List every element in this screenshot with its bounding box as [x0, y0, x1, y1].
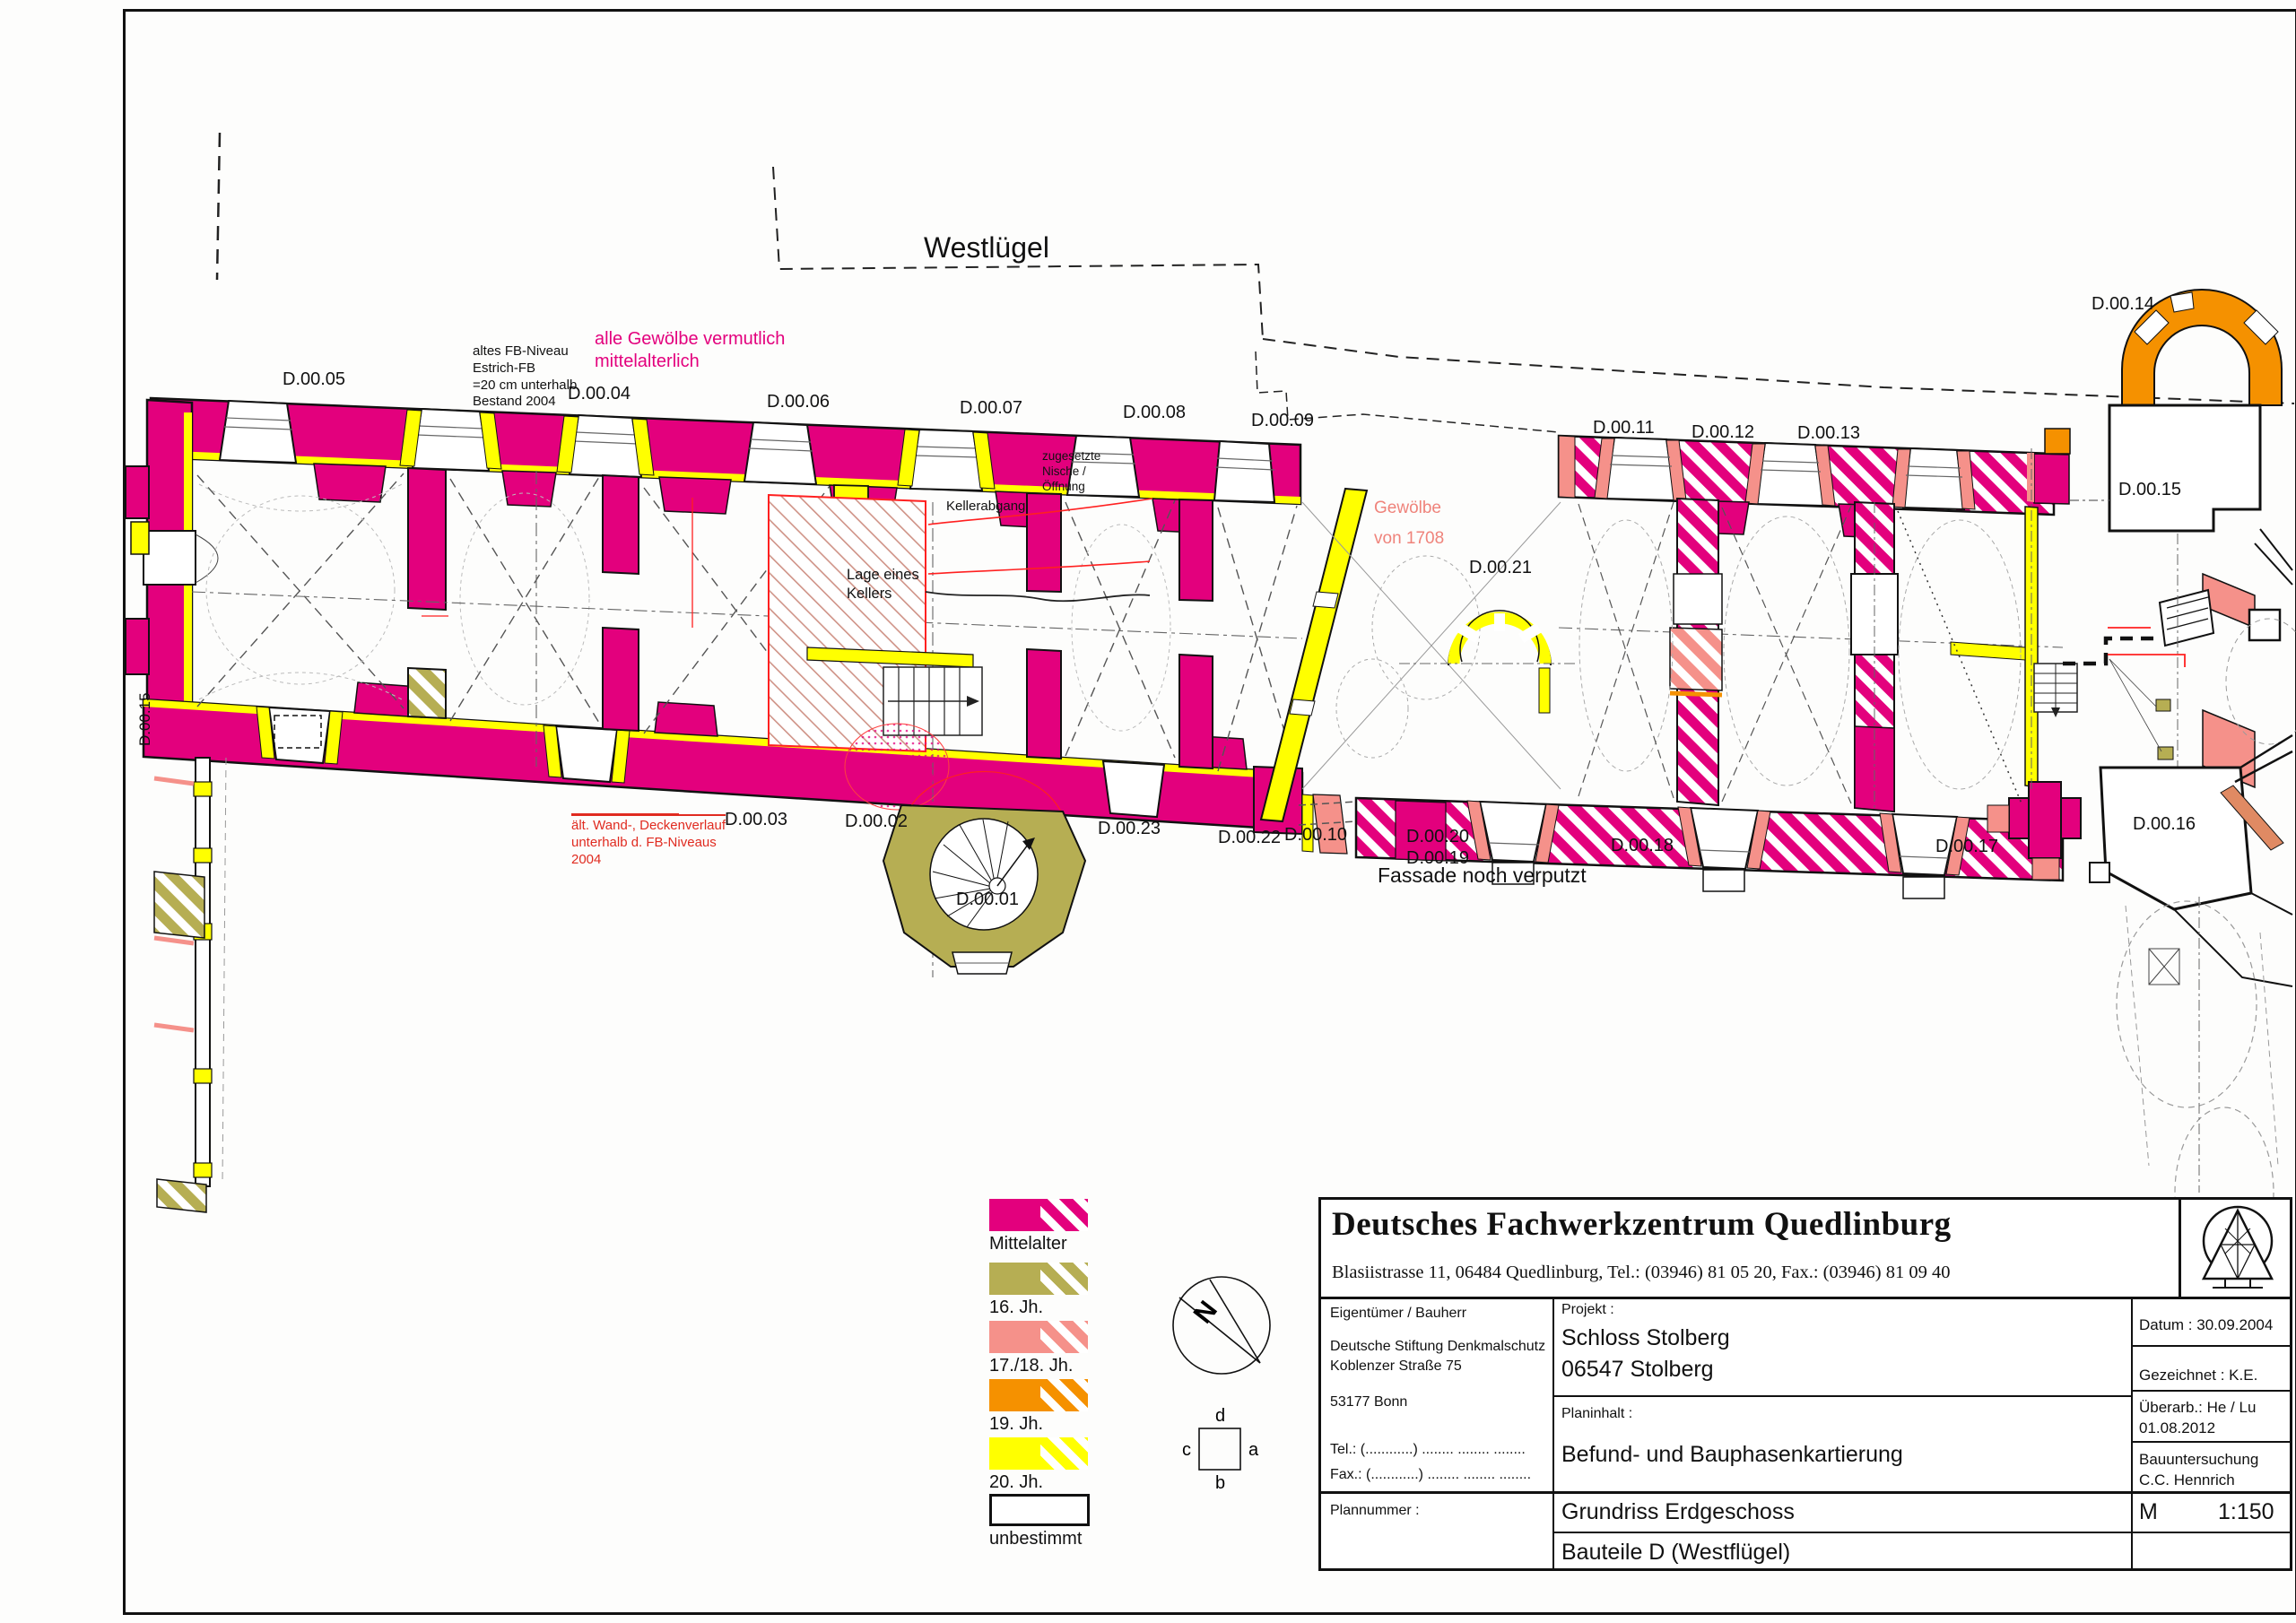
legend-swatch-hatch: [1040, 1379, 1088, 1411]
legend-item-mittelalter: Mittelalter: [989, 1199, 1092, 1254]
company-name: Deutsches Fachwerkzentrum Quedlinburg: [1332, 1205, 1952, 1244]
north-letter: N: [1188, 1296, 1223, 1329]
legend-item-16jh: 16. Jh.: [989, 1263, 1092, 1318]
legend-swatch-solid: [989, 1321, 1040, 1353]
room-label: D.00.21: [1469, 558, 1532, 578]
survey-line2: C.C. Hennrich: [2139, 1471, 2235, 1489]
legend-item-unbestimmt: unbestimmt: [989, 1494, 1092, 1549]
plan-heading: Westlügel: [924, 230, 1049, 265]
legend-item-20jh: 20. Jh.: [989, 1437, 1092, 1493]
legend-label: 16. Jh.: [989, 1298, 1092, 1318]
owner-label: Eigentümer / Bauherr: [1330, 1306, 1466, 1322]
sheet-subtitle: Bauteile D (Westflügel): [1561, 1540, 1790, 1566]
survey-line1: Bauuntersuchung: [2139, 1451, 2258, 1469]
note-fassade: Fassade noch verputzt: [1378, 863, 1587, 889]
room-label: D.00.10: [1284, 825, 1347, 846]
room-label: D.00.18: [1611, 836, 1674, 856]
note-nische: zugesetzte Nische / Öffnung: [1042, 449, 1100, 495]
orientation-c: c: [1182, 1440, 1191, 1460]
legend-swatch-hatch: [1040, 1199, 1088, 1231]
company-address: Blasiistrasse 11, 06484 Quedlinburg, Tel…: [1332, 1263, 1950, 1283]
room-label: D.00.17: [1935, 837, 1998, 857]
legend-label: 19. Jh.: [989, 1414, 1092, 1435]
date-value: Datum : 30.09.2004: [2139, 1316, 2273, 1334]
legend-swatch-solid: [989, 1379, 1040, 1411]
owner-tel: Tel.: (............) ........ ........ .…: [1330, 1440, 1526, 1460]
company-logo: [2189, 1202, 2286, 1295]
room-label-vertical: D.00.15: [136, 692, 154, 746]
plannumber-label: Plannummer :: [1330, 1503, 1420, 1519]
legend-swatch-plain: [989, 1494, 1090, 1526]
southwest-corridor: [154, 758, 226, 1212]
room-label: D.00.09: [1251, 411, 1314, 431]
title-block: Deutsches Fachwerkzentrum Quedlinburg Bl…: [1318, 1197, 2292, 1571]
note-gewoelbe-1708: Gewölbe von 1708: [1374, 493, 1444, 554]
revised-line1: Überarb.: He / Lu: [2139, 1399, 2256, 1417]
project-city: 06547 Stolberg: [1561, 1357, 1714, 1383]
owner-line2: Koblenzer Straße 75: [1330, 1357, 1462, 1376]
room-label: D.00.14: [2092, 294, 2154, 315]
room-label: D.00.05: [283, 369, 345, 390]
right-end-structures: [2063, 290, 2296, 1278]
room-label: D.00.03: [725, 810, 787, 830]
revised-line2: 01.08.2012: [2139, 1419, 2215, 1437]
orientation-a: a: [1248, 1440, 1259, 1460]
room-label: D.00.15: [2118, 480, 2181, 500]
legend-swatch-hatch: [1040, 1263, 1088, 1295]
orientation-d: d: [1215, 1406, 1225, 1426]
room-label: D.00.22: [1218, 828, 1281, 848]
legend-swatch-hatch: [1040, 1437, 1088, 1470]
note-keller: Lage eines Kellers: [847, 566, 919, 603]
scale-m: M: [2139, 1499, 2158, 1525]
legend-swatch-solid: [989, 1199, 1040, 1231]
drawing-sheet: Westlügel D.00.05 D.00.04 D.00.06 D.00.0…: [0, 0, 2296, 1623]
legend-label: 17./18. Jh.: [989, 1356, 1092, 1376]
legend-swatch-solid: [989, 1437, 1040, 1470]
room-label: D.00.08: [1123, 403, 1186, 423]
room-label: D.00.20: [1406, 827, 1469, 847]
room-label: D.00.01: [956, 890, 1019, 910]
chapel-apse: [1399, 611, 1578, 713]
room-label: D.00.02: [845, 811, 908, 832]
drawn-value: Gezeichnet : K.E.: [2139, 1367, 2257, 1384]
room-label: D.00.04: [568, 384, 631, 404]
project-label: Projekt :: [1561, 1302, 1614, 1318]
owner-line3: 53177 Bonn: [1330, 1393, 1407, 1412]
owner-line1: Deutsche Stiftung Denkmalschutz: [1330, 1337, 1545, 1357]
room-label: D.00.12: [1692, 422, 1754, 443]
note-fb-niveau: altes FB-Niveau Estrich-FB =20 cm unterh…: [473, 343, 577, 411]
legend-label: Mittelalter: [989, 1234, 1092, 1254]
note-gewoelbe-ma: alle Gewölbe vermutlich mittelalterlich: [595, 328, 785, 373]
scale-value: 1:150: [2218, 1499, 2274, 1525]
legend-swatch-solid: [989, 1263, 1040, 1295]
note-kellerabgang: Kellerabgang: [946, 499, 1025, 516]
owner-fax: Fax.: (............) ........ ........ .…: [1330, 1465, 1531, 1485]
legend-item-19jh: 19. Jh.: [989, 1379, 1092, 1435]
legend-swatch-hatch: [1040, 1321, 1088, 1353]
legend-label: unbestimmt: [989, 1529, 1092, 1549]
room-label: D.00.16: [2133, 814, 2196, 835]
project-name: Schloss Stolberg: [1561, 1325, 1730, 1351]
room-label: D.00.11: [1593, 418, 1655, 438]
room-label: D.00.23: [1098, 819, 1161, 839]
north-arrow: N: [1152, 1260, 1296, 1403]
legend-label: 20. Jh.: [989, 1472, 1092, 1493]
note-alt-wand: ält. Wand-, Deckenverlauf unterhalb d. F…: [571, 814, 726, 868]
content-label: Planinhalt :: [1561, 1406, 1632, 1422]
legend-item-17-18jh: 17./18. Jh.: [989, 1321, 1092, 1376]
room-label: D.00.06: [767, 392, 830, 412]
orientation-square: d a b c: [1166, 1399, 1274, 1506]
content-value: Befund- und Bauphasenkartierung: [1561, 1442, 1903, 1468]
room-label: D.00.07: [960, 398, 1022, 419]
sheet-title: Grundriss Erdgeschoss: [1561, 1499, 1795, 1525]
orientation-b: b: [1215, 1473, 1225, 1493]
room-label: D.00.13: [1797, 423, 1860, 444]
